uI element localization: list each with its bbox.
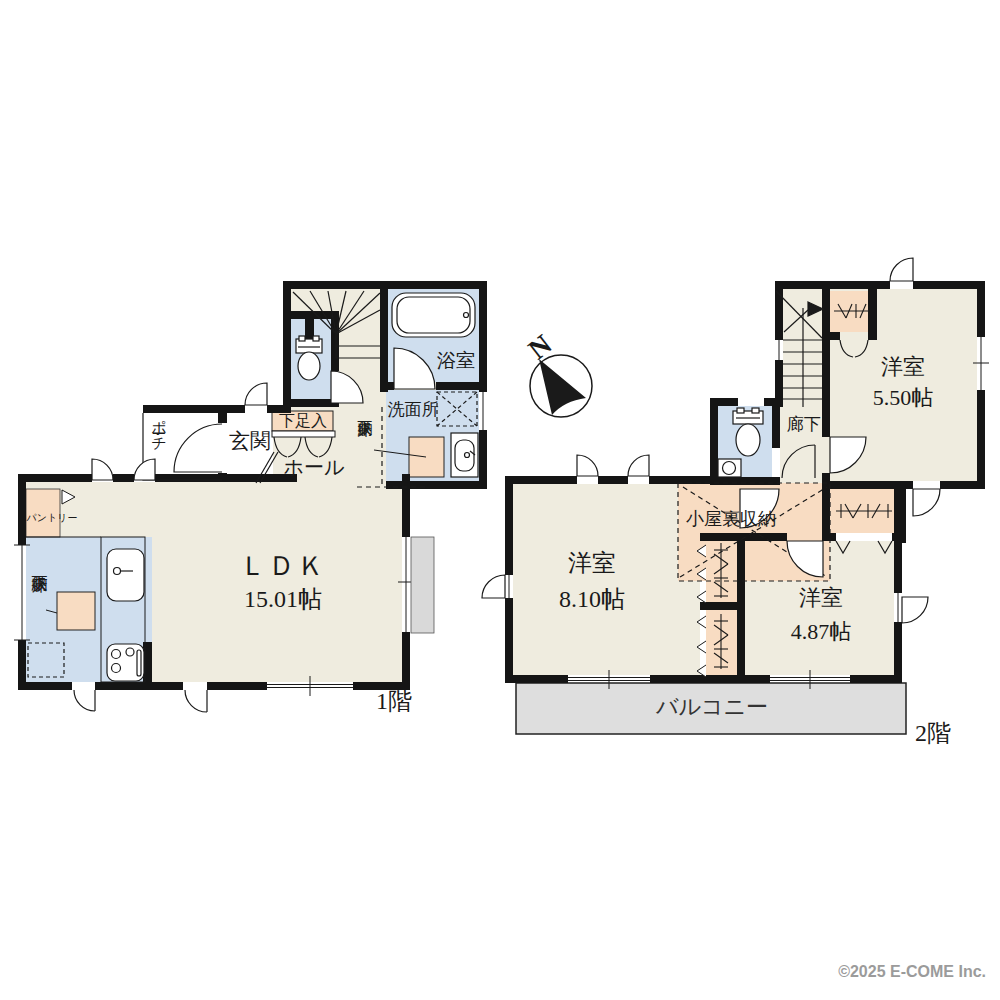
kitchen-sink-icon	[107, 549, 144, 601]
bathtub-icon	[392, 293, 475, 337]
floor-plan: ポーチ 玄関 下足入 ホール 床下収納 浴室 洗面所 ＬＤＫ 15.01帖 パン…	[0, 0, 1000, 1000]
label-room-b-size: 8.10帖	[559, 587, 625, 612]
casement-window	[134, 459, 155, 480]
label-attic-storage: 小屋裏収納	[686, 510, 776, 529]
label-shoe-cabinet: 下足入	[279, 413, 327, 430]
label-room-a: 洋室	[881, 355, 925, 378]
front-door-swing	[174, 424, 222, 472]
toilet-icon	[296, 336, 322, 380]
label-room-a-size: 5.50帖	[873, 386, 934, 409]
copyright-text: ©2025 E-COME Inc.	[838, 963, 986, 981]
label-bathroom: 浴室	[437, 351, 475, 371]
casement-window	[890, 258, 913, 281]
label-ldk-size: 15.01帖	[244, 587, 322, 612]
casement-window	[245, 383, 267, 405]
underfloor-storage-washroom-box	[409, 437, 444, 477]
vanity-sink-icon	[451, 433, 478, 477]
label-floor1: 1階	[376, 689, 412, 714]
casement-window	[577, 455, 598, 476]
toilet-icon	[733, 408, 763, 456]
floor-plan-drawing	[0, 0, 1000, 1000]
label-room-c: 洋室	[799, 586, 843, 609]
label-balcony: バルコニー	[656, 695, 768, 718]
compass	[530, 355, 592, 417]
label-corridor: 廊下	[787, 416, 821, 434]
casement-window	[902, 597, 928, 623]
shutter-box	[411, 537, 434, 633]
label-washroom: 洗面所	[388, 401, 439, 419]
label-porch: ポーチ	[150, 409, 166, 443]
underfloor-storage-kitchen-box	[57, 592, 95, 630]
label-floor2: 2階	[915, 721, 951, 746]
label-room-b: 洋室	[568, 551, 616, 576]
label-ldk: ＬＤＫ	[240, 552, 327, 580]
casement-window	[482, 575, 505, 598]
label-hall: ホール	[284, 457, 345, 478]
casement-window	[913, 489, 940, 516]
label-room-c-size: 4.87帖	[791, 620, 852, 643]
label-pantry: パントリー	[27, 513, 78, 524]
casement-window	[628, 455, 649, 476]
label-genkan: 玄関	[229, 430, 271, 452]
casement-window	[92, 459, 113, 480]
casement-door	[74, 690, 207, 712]
corner-sink-icon	[718, 459, 741, 477]
